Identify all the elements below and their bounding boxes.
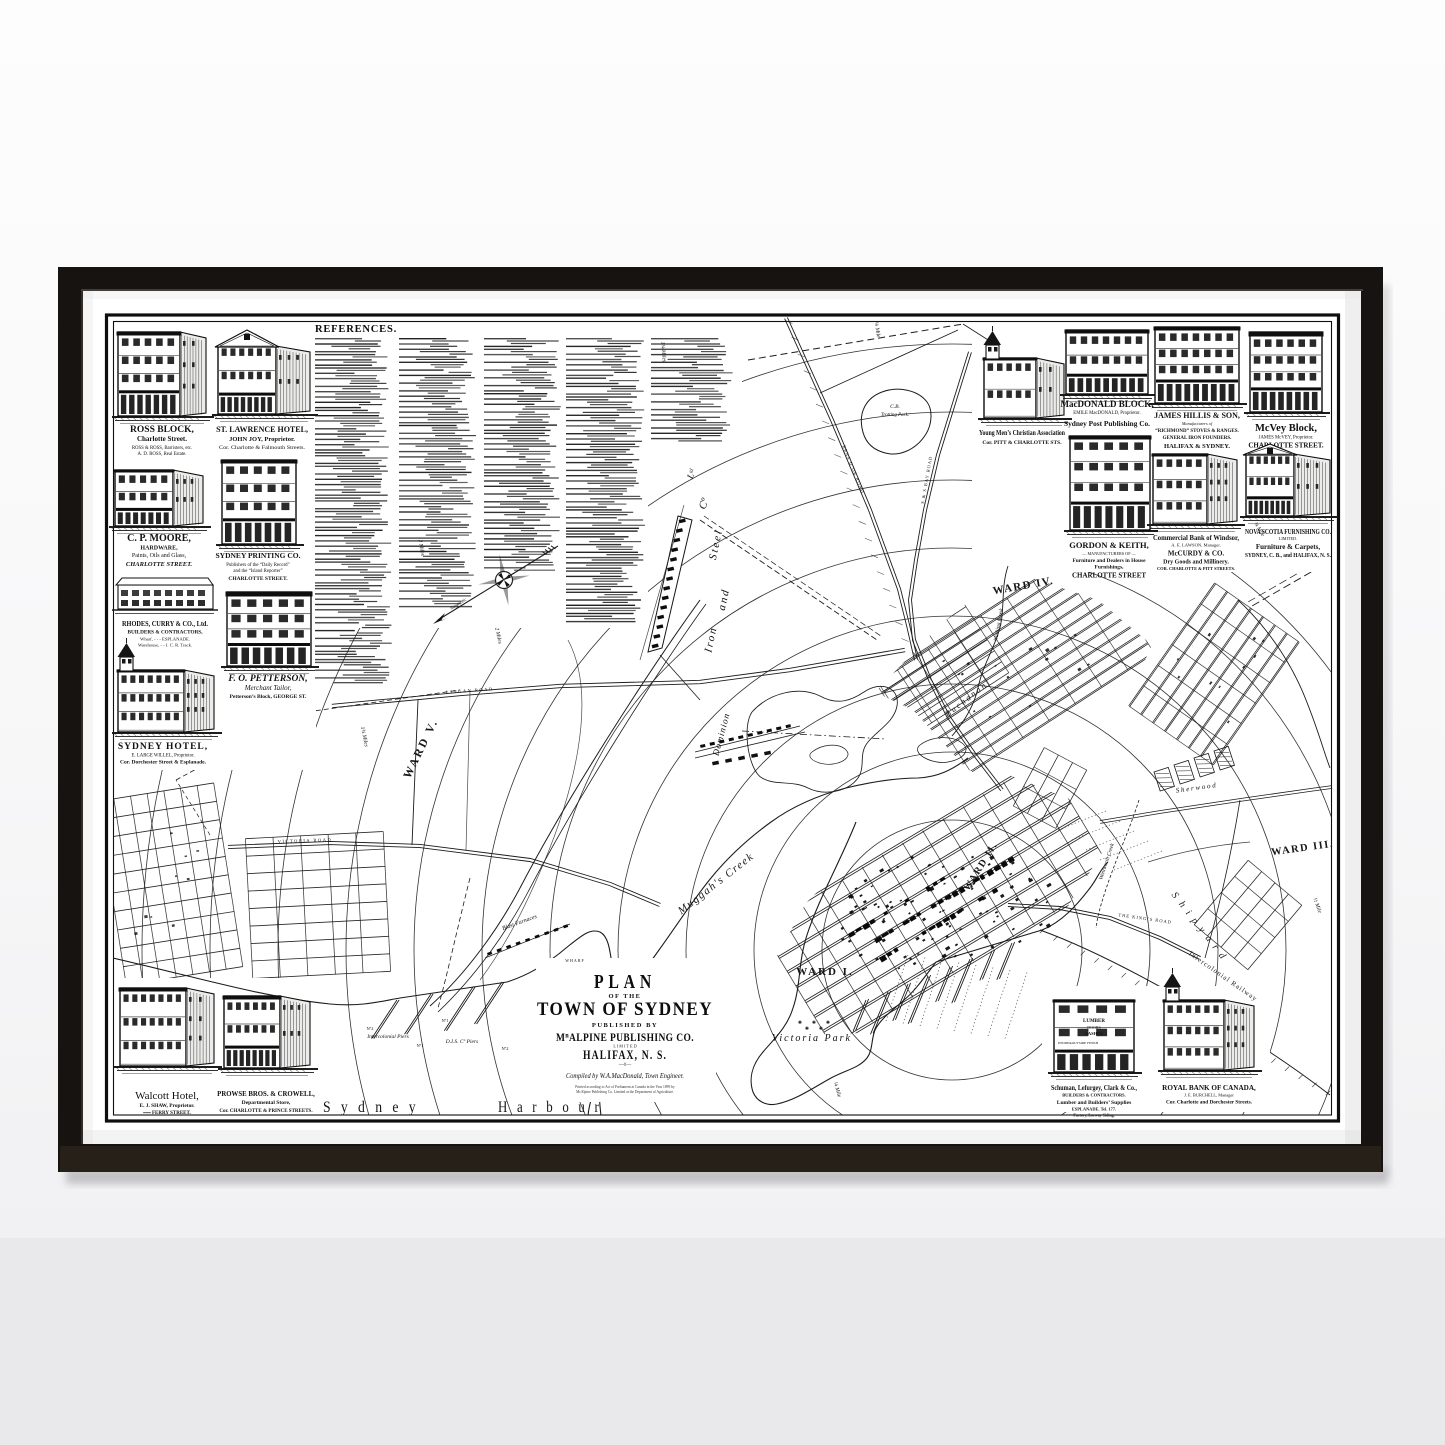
svg-text:WHARF: WHARF <box>565 958 584 963</box>
svg-text:ST. LAWRENCE HOTEL,: ST. LAWRENCE HOTEL, <box>216 425 308 434</box>
svg-text:WARD I.: WARD I. <box>796 966 853 978</box>
svg-text:F. O. PETTERSON,: F. O. PETTERSON, <box>227 674 307 684</box>
svg-text:SASHES: SASHES <box>1085 1031 1103 1036</box>
svg-text:ROYAL BANK OF CANADA,: ROYAL BANK OF CANADA, <box>1162 1084 1256 1092</box>
svg-text:“RICHMOND” STOVES & RANGES.: “RICHMOND” STOVES & RANGES. <box>1155 428 1239 434</box>
svg-text:Furnishings,: Furnishings, <box>1095 565 1125 571</box>
svg-text:TOWN OF SYDNEY: TOWN OF SYDNEY <box>537 999 713 1020</box>
svg-text:Cor. Charlotte & Falmouth Stre: Cor. Charlotte & Falmouth Streets. <box>219 445 305 451</box>
svg-text:Walcott Hotel,: Walcott Hotel, <box>135 1090 199 1102</box>
svg-text:and the “Island Reporter”: and the “Island Reporter” <box>233 568 282 574</box>
svg-text:A. D. ROSS, Real Estate.: A. D. ROSS, Real Estate. <box>137 452 186 457</box>
svg-text:BUILDERS & CONTRACTORS,: BUILDERS & CONTRACTORS, <box>128 630 204 636</box>
svg-text:ESPLANADE. Tel. 177.: ESPLANADE. Tel. 177. <box>1072 1107 1116 1112</box>
svg-text:Cor. Charlotte and Dorchester: Cor. Charlotte and Dorchester Streets. <box>1166 1101 1253 1106</box>
svg-text:E. J. SHAW, Proprietor.: E. J. SHAW, Proprietor. <box>139 1103 195 1109</box>
svg-text:Manufacturers of: Manufacturers of <box>1181 421 1213 426</box>
svg-text:✺: ✺ <box>819 1026 823 1032</box>
svg-text:✺: ✺ <box>812 1020 816 1026</box>
svg-text:Trotting Park.: Trotting Park. <box>881 413 909 418</box>
svg-text:Nº2: Nº2 <box>367 1026 374 1031</box>
svg-text:HALIFAX & SYDNEY.: HALIFAX & SYDNEY. <box>1164 443 1230 450</box>
svg-text:Paints, Oils and Glass,: Paints, Oils and Glass, <box>132 553 187 559</box>
svg-text:GENERAL IRON FOUNDERS.: GENERAL IRON FOUNDERS. <box>1163 436 1233 441</box>
svg-text:JAMES HILLIS & SON,: JAMES HILLIS & SON, <box>1154 411 1240 420</box>
svg-text:LUMBER: LUMBER <box>1083 1019 1105 1024</box>
svg-text:Cor. PITT & CHARLOTTE STS.: Cor. PITT & CHARLOTTE STS. <box>982 440 1062 446</box>
svg-text:GORDON & KEITH,: GORDON & KEITH, <box>1069 540 1149 550</box>
svg-text:COR. CHARLOTTE & PITT STREETS.: COR. CHARLOTTE & PITT STREETS. <box>1157 566 1235 571</box>
svg-text:Cor. CHARLOTTE & PRINCE STREET: Cor. CHARLOTTE & PRINCE STREETS. <box>219 1109 313 1114</box>
svg-text:SYDNEY HOTEL,: SYDNEY HOTEL, <box>118 742 208 752</box>
svg-text:SYDNEY, C. B., and HALIFAX, N.: SYDNEY, C. B., and HALIFAX, N. S. <box>1245 553 1331 559</box>
svg-text:Compiled by W.A.MacDonald, Tow: Compiled by W.A.MacDonald, Town Engineer… <box>566 1072 684 1080</box>
svg-text:Young Men’s Christian Associat: Young Men’s Christian Association <box>979 429 1065 437</box>
svg-text:McAlpine Publishing Co. Limite: McAlpine Publishing Co. Limited at the D… <box>576 1090 674 1094</box>
svg-text:Merchant Tailor,: Merchant Tailor, <box>244 684 292 692</box>
svg-text:ROSS BLOCK,: ROSS BLOCK, <box>130 425 195 435</box>
svg-text:McCURDY & CO.: McCURDY & CO. <box>1168 550 1225 558</box>
svg-text:Furniture and Dealers in House: Furniture and Dealers in House <box>1073 558 1147 564</box>
svg-text:PROWSE BROS. & CROWELL,: PROWSE BROS. & CROWELL, <box>217 1091 315 1098</box>
svg-text:Dry Goods and Millinery.: Dry Goods and Millinery. <box>1163 560 1229 566</box>
svg-text:D.I.S. Cº Piers: D.I.S. Cº Piers <box>445 1039 478 1045</box>
svg-text:Departmental Store,: Departmental Store, <box>242 1100 291 1106</box>
svg-text:Petterson’s Block, GEORGE ST.: Petterson’s Block, GEORGE ST. <box>230 694 307 700</box>
svg-text:Publishers of the “Daily Recor: Publishers of the “Daily Record” <box>226 562 289 568</box>
svg-text:EMILE MacDONALD, Proprietor.: EMILE MacDONALD, Proprietor. <box>1073 411 1140 416</box>
svg-text:REFERENCES.: REFERENCES. <box>315 324 397 335</box>
svg-text:Sydney Post Publishing Co.: Sydney Post Publishing Co. <box>1064 419 1150 428</box>
svg-text:Factory, Lorway Siding.: Factory, Lorway Siding. <box>1073 1113 1114 1118</box>
svg-text:PLAN: PLAN <box>594 971 656 993</box>
svg-text:✺: ✺ <box>826 1020 830 1026</box>
svg-text:✺: ✺ <box>798 1020 802 1026</box>
svg-text:NOVA SCOTIA FURNISHING CO.: NOVA SCOTIA FURNISHING CO. <box>1245 528 1331 536</box>
svg-text:HARDWARE,: HARDWARE, <box>140 546 178 552</box>
svg-text:Nº2: Nº2 <box>502 1046 509 1051</box>
svg-text:McVey Block,: McVey Block, <box>1255 423 1317 434</box>
svg-text:LIMITED.: LIMITED. <box>1279 536 1297 541</box>
svg-text:— MANUFACTURERS OF —: — MANUFACTURERS OF — <box>1081 551 1136 556</box>
svg-text:H a r b o u r: H a r b o u r <box>498 1099 602 1116</box>
svg-text:BUILDERS & CONTRACTORS.: BUILDERS & CONTRACTORS. <box>1062 1093 1125 1098</box>
svg-text:JAMES McVEY, Proprietor.: JAMES McVEY, Proprietor. <box>1259 436 1314 441</box>
svg-text:Furniture & Carpets,: Furniture & Carpets, <box>1256 543 1320 551</box>
svg-text:Lumber and Builders’ Supplies: Lumber and Builders’ Supplies <box>1057 1100 1132 1106</box>
svg-text:CHARLOTTE STREET.: CHARLOTTE STREET. <box>126 561 193 568</box>
svg-text:MⁿALPINE PUBLISHING CO.: MⁿALPINE PUBLISHING CO. <box>556 1030 694 1044</box>
svg-text:JOHN JOY, Proprietor.: JOHN JOY, Proprietor. <box>229 436 295 443</box>
svg-text:Printed according to Act of Pa: Printed according to Act of Parliament a… <box>575 1085 675 1089</box>
svg-text:✺: ✺ <box>805 1026 809 1032</box>
svg-text:CHARLOTTE STREET: CHARLOTTE STREET <box>1072 572 1146 580</box>
svg-text:Cor. Dorchester Street & Espla: Cor. Dorchester Street & Esplanade. <box>120 760 207 766</box>
svg-text:S y d n e y: S y d n e y <box>323 1099 419 1116</box>
svg-text:HALIFAX, N. S.: HALIFAX, N. S. <box>583 1048 667 1062</box>
svg-text:DOORS: DOORS <box>1087 1025 1101 1030</box>
svg-text:Intercolonial Piers: Intercolonial Piers <box>366 1034 409 1040</box>
svg-text:Nº1: Nº1 <box>417 1043 424 1048</box>
svg-text:Victoria Park: Victoria Park <box>772 1033 852 1044</box>
svg-text:C. P. MOORE,: C. P. MOORE, <box>127 533 191 544</box>
svg-text:—◊—: —◊— <box>618 1062 632 1068</box>
svg-text:Schuman, Lefurgey, Clark & Co.: Schuman, Lefurgey, Clark & Co., <box>1051 1085 1137 1092</box>
svg-text:MacDONALD BLOCK,: MacDONALD BLOCK, <box>1061 399 1154 409</box>
svg-text:Charlotte Street.: Charlotte Street. <box>137 435 187 443</box>
svg-text:Nº1: Nº1 <box>442 1018 449 1023</box>
svg-text:CHARLOTTE STREET.: CHARLOTTE STREET. <box>228 576 288 582</box>
svg-text:RHODES, CURRY & CO., Ltd.: RHODES, CURRY & CO., Ltd. <box>122 620 208 628</box>
svg-text:INSIDE&OUTSIDE FINISH: INSIDE&OUTSIDE FINISH <box>1058 1041 1099 1045</box>
svg-text:ROSS & ROSS, Barristers, etc.: ROSS & ROSS, Barristers, etc. <box>132 446 192 451</box>
svg-text:PUBLISHED BY: PUBLISHED BY <box>592 1022 658 1029</box>
svg-text:⎯⎯⎯ FERRY STREET.: ⎯⎯⎯ FERRY STREET. <box>142 1111 191 1116</box>
svg-text:E. LARGE WILLEL, Proprietor.: E. LARGE WILLEL, Proprietor. <box>131 754 194 759</box>
svg-text:C.B.: C.B. <box>890 404 900 410</box>
svg-text:SYDNEY PRINTING CO.: SYDNEY PRINTING CO. <box>216 551 301 560</box>
svg-text:Commercial Bank of Windsor,: Commercial Bank of Windsor, <box>1153 534 1239 542</box>
